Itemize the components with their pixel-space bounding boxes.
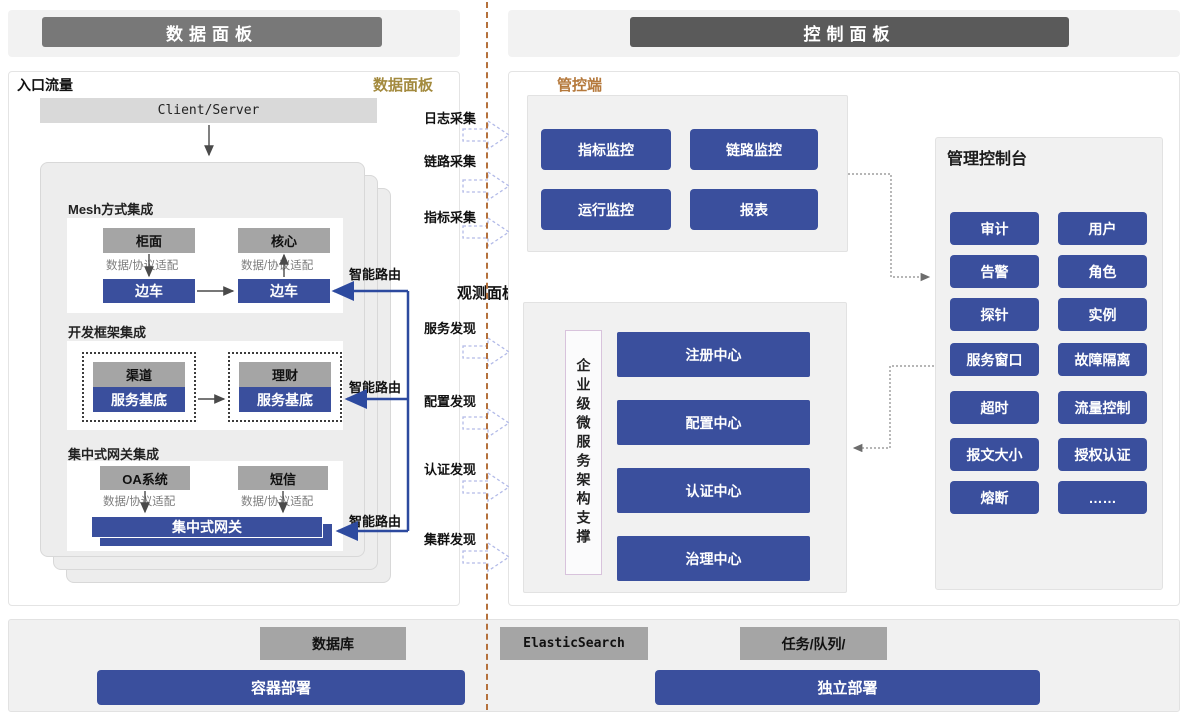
framework-section-title: 开发框架集成 bbox=[68, 322, 146, 341]
runtime-monitor-button: 运行监控 bbox=[541, 189, 671, 230]
mesh-right-app-box: 核心 bbox=[238, 228, 330, 253]
service-window-button: 服务窗口 bbox=[950, 343, 1039, 376]
database-box: 数据库 bbox=[260, 627, 406, 660]
framework-right-app-box: 理财 bbox=[239, 362, 331, 387]
gateway-left-app-box: OA系统 bbox=[100, 466, 190, 490]
fault-isolation-button: 故障隔离 bbox=[1058, 343, 1147, 376]
audit-button: 审计 bbox=[950, 212, 1039, 245]
message-size-button: 报文大小 bbox=[950, 438, 1039, 471]
mesh-left-app-box: 柜面 bbox=[103, 228, 195, 253]
gateway-right-adapter-label: 数据/协议适配 bbox=[241, 493, 313, 509]
gateway-right-app-box: 短信 bbox=[238, 466, 328, 490]
circuit-breaker-button: 熔断 bbox=[950, 481, 1039, 514]
framework-right-base-box: 服务基底 bbox=[239, 387, 331, 412]
microservice-support-vertical-box: 企业级微服务架构支撑 bbox=[565, 330, 602, 575]
authorization-button: 授权认证 bbox=[1058, 438, 1147, 471]
client-server-box: Client/Server bbox=[40, 98, 377, 123]
more-ellipsis-button: …… bbox=[1058, 481, 1147, 514]
instance-button: 实例 bbox=[1058, 298, 1147, 331]
report-button: 报表 bbox=[690, 189, 818, 230]
mesh-section-title: Mesh方式集成 bbox=[68, 199, 153, 218]
trace-monitor-button: 链路监控 bbox=[690, 129, 818, 170]
task-queue-box: 任务/队列/ bbox=[740, 627, 887, 660]
microservice-architecture-diagram: 数据面板 控制面板 入口流量 数据面板 Client/Server Mesh方式… bbox=[0, 0, 1189, 720]
data-panel-header: 数据面板 bbox=[42, 17, 382, 47]
control-plane-corner-title: 管控端 bbox=[557, 74, 602, 95]
smart-route-label-1: 智能路由 bbox=[349, 264, 401, 283]
governance-center-button: 治理中心 bbox=[617, 536, 810, 581]
mesh-left-sidecar-box: 边车 bbox=[103, 279, 195, 303]
smart-route-label-3: 智能路由 bbox=[349, 511, 401, 530]
ingress-traffic-label: 入口流量 bbox=[17, 75, 73, 95]
center-divider-line bbox=[486, 2, 488, 710]
auth-center-button: 认证中心 bbox=[617, 468, 810, 513]
mesh-right-adapter-label: 数据/协议适配 bbox=[241, 257, 313, 273]
alert-button: 告警 bbox=[950, 255, 1039, 288]
gateway-left-adapter-label: 数据/协议适配 bbox=[103, 493, 175, 509]
elasticsearch-box: ElasticSearch bbox=[500, 627, 648, 660]
framework-left-app-box: 渠道 bbox=[93, 362, 185, 387]
standalone-deploy-bar: 独立部署 bbox=[655, 670, 1040, 705]
control-panel-header: 控制面板 bbox=[630, 17, 1069, 47]
mesh-right-sidecar-box: 边车 bbox=[238, 279, 330, 303]
user-button: 用户 bbox=[1058, 212, 1147, 245]
trace-collect-label: 链路采集 bbox=[424, 151, 476, 170]
probe-button: 探针 bbox=[950, 298, 1039, 331]
data-plane-corner-title: 数据面板 bbox=[373, 74, 433, 95]
traffic-control-button: 流量控制 bbox=[1058, 391, 1147, 424]
timeout-button: 超时 bbox=[950, 391, 1039, 424]
role-button: 角色 bbox=[1058, 255, 1147, 288]
management-console-title: 管理控制台 bbox=[947, 145, 1027, 169]
metric-monitor-button: 指标监控 bbox=[541, 129, 671, 170]
registry-center-button: 注册中心 bbox=[617, 332, 810, 377]
central-gateway-bar: 集中式网关 bbox=[91, 516, 323, 538]
service-discovery-label: 服务发现 bbox=[424, 318, 476, 337]
config-center-button: 配置中心 bbox=[617, 400, 810, 445]
container-deploy-bar: 容器部署 bbox=[97, 670, 465, 705]
smart-route-label-2: 智能路由 bbox=[349, 377, 401, 396]
framework-left-base-box: 服务基底 bbox=[93, 387, 185, 412]
mesh-left-adapter-label: 数据/协议适配 bbox=[106, 257, 178, 273]
